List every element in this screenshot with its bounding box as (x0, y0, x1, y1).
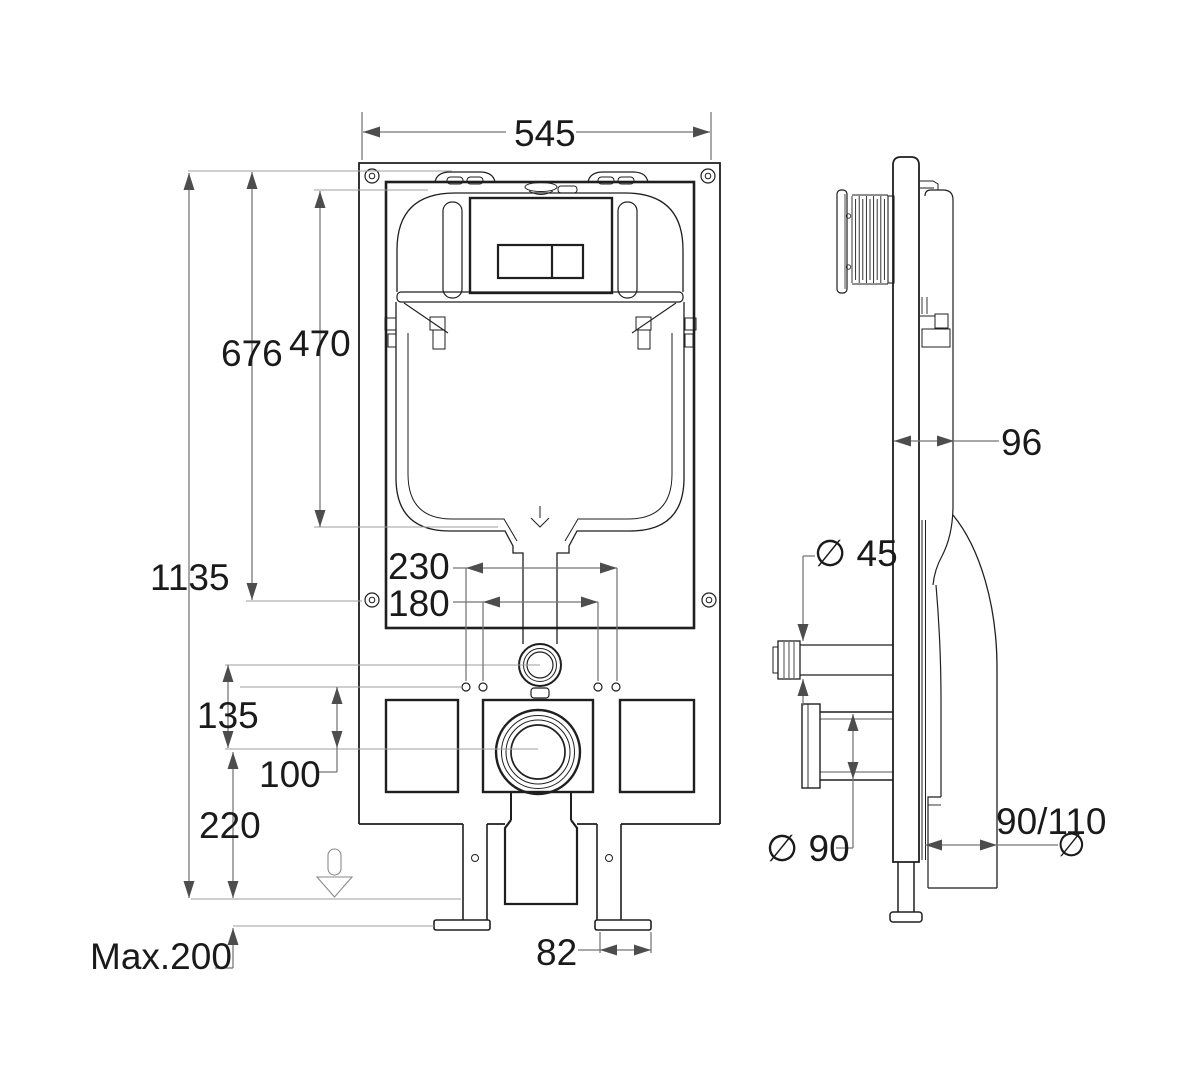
outlet-pipe-side (802, 704, 893, 788)
dim-label-82: 82 (536, 932, 577, 973)
dim-label-max200: Max.200 (90, 936, 232, 977)
dim-bend-size: 90/110 ∅ (925, 801, 1106, 863)
dim-flush-pipe-diameter: ∅ 45 (798, 533, 898, 706)
side-foot-plate (890, 912, 922, 922)
dim-label-470: 470 (289, 323, 351, 364)
dim-label-1135: 1135 (150, 557, 230, 598)
side-rail (618, 202, 637, 298)
side-rail (443, 202, 462, 298)
inlet-fitting (920, 297, 950, 347)
drain-outlet-port (496, 710, 580, 794)
dim-max-adjustment: Max.200 (90, 928, 239, 977)
dim-label-90-110: 90/110 (996, 801, 1106, 842)
side-frame-panel (893, 157, 919, 862)
dim-outlet-height: 220 (199, 752, 261, 898)
drawing-canvas: 545 1135 676 470 230 (0, 0, 1199, 1080)
dim-label-d45: ∅ 45 (814, 533, 898, 574)
dimensions: 545 1135 676 470 230 (90, 112, 1106, 977)
adjustable-leg (463, 824, 621, 920)
dim-label-676: 676 (221, 333, 283, 374)
dim-upper-fixing-height: 676 (221, 172, 283, 600)
screw-icon (365, 169, 716, 607)
dim-overall-height: 1135 (150, 173, 230, 898)
foot-plate (434, 920, 490, 930)
outlet-duct (505, 792, 577, 904)
dim-cistern-height: 470 (289, 191, 351, 527)
dim-label-230: 230 (388, 546, 450, 587)
flush-pipe-side (773, 641, 893, 679)
dim-label-180: 180 (388, 583, 450, 624)
foot-plate (595, 920, 651, 930)
floor-level-icon (317, 849, 352, 897)
diameter-symbol: ∅ (1057, 826, 1086, 863)
water-inlet-port (519, 644, 561, 698)
flush-buttons (498, 245, 583, 278)
drain-bend (928, 515, 997, 888)
dim-label-96: 96 (1001, 422, 1042, 463)
actuator-bellows (837, 190, 894, 293)
cistern-profile (925, 190, 953, 585)
dim-overall-width: 545 (362, 112, 711, 160)
side-leg (898, 862, 914, 912)
installation-diagram: 545 1135 676 470 230 (0, 0, 1199, 1080)
dim-inlet-drop: 135 (197, 665, 259, 748)
dim-fixing-drop: 100 (259, 687, 343, 795)
fixing-hole (462, 683, 620, 691)
dim-label-220: 220 (199, 805, 261, 846)
dim-frame-depth: 96 (894, 422, 1042, 463)
dim-label-100: 100 (259, 754, 321, 795)
dim-label-d90: ∅ 90 (766, 828, 850, 869)
dim-label-135: 135 (197, 695, 259, 736)
dim-label-545: 545 (514, 113, 576, 154)
dim-foot-width: 82 (536, 932, 651, 973)
wall-bracket (920, 181, 938, 190)
rear-pipe-lines (922, 520, 926, 860)
dim-fixing-spacing-inner: 180 (388, 583, 598, 681)
dim-outlet-pipe-diameter: ∅ 90 (766, 714, 859, 869)
